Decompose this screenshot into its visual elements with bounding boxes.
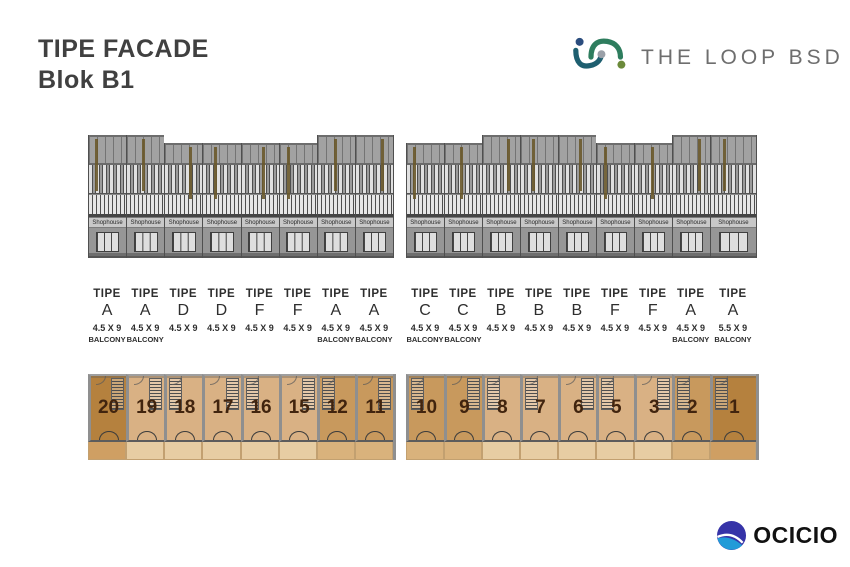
plan-room: 12 [317,374,355,442]
unit-size: 4.5 X 9 [279,323,317,333]
type-labels-left: TIPEA4.5 X 9BALCONYTIPEA4.5 X 9BALCONYTI… [88,288,393,344]
entry-door-arcs-icon [454,431,474,440]
plan-room: 17 [202,374,240,442]
facade-upper-panel [127,135,164,165]
tipe-word: TIPE [355,288,393,300]
facade-second-floor-windows [280,194,317,217]
tipe-word: TIPE [710,288,756,300]
unit-number: 8 [497,397,508,419]
plan-room: 15 [279,374,317,442]
ocicio-logo-text: OCICIO [753,522,838,549]
unit-size: 4.5 X 9 [126,323,164,333]
facade-upper-panel [242,143,279,165]
shopfront-door [414,232,438,252]
facade-left-building: ShophouseShophouseShophouseShophouseShop… [88,135,394,258]
type-label-3: TIPEF4.5 X 9 [634,288,672,344]
back-door-arc-icon [96,376,106,385]
unit-number: 20 [98,397,119,419]
facade-ground-floor [242,228,279,258]
balcony-word [558,335,596,344]
facade-ground-floor [597,228,634,258]
shopfront-door [363,232,387,252]
front-terrace [482,442,520,460]
unit-size: 4.5 X 9 [444,323,482,333]
tipe-letter: A [710,302,756,320]
back-door-arc-icon [566,376,576,385]
facade-second-floor-windows [559,194,596,217]
facade-upper-panel [711,135,756,165]
tipe-letter: A [88,302,126,320]
tipe-word: TIPE [482,288,520,300]
plan-room: 18 [164,374,202,442]
shophouse-sign: Shophouse [445,217,482,228]
shophouse-sign-text: Shophouse [600,220,630,226]
facade-second-floor-windows [242,194,279,217]
tipe-letter: B [482,302,520,320]
back-door-arc-icon [642,376,652,385]
facade-third-floor-windows [165,165,202,194]
floor-plans-left: 2019181716151211 [88,374,396,460]
facade-upper-panel [280,143,317,165]
tipe-letter: F [596,302,634,320]
type-label-19: TIPEA4.5 X 9BALCONY [126,288,164,344]
brochure-page: TIPE FACADE Blok B1 THE LOOP BSD Shophou… [0,0,850,567]
plan-room: 5 [596,374,634,442]
facade-second-floor-windows [203,194,240,217]
plan-unit-16: 16 [241,374,279,460]
unit-number: 10 [416,397,437,419]
theloop-bsd-logo: THE LOOP BSD [572,34,844,82]
shophouse-sign: Shophouse [165,217,202,228]
entry-door-arcs-icon [213,431,233,440]
front-terrace [164,442,202,460]
facade-upper-panel [635,143,672,165]
unit-number: 5 [611,397,622,419]
tipe-word: TIPE [558,288,596,300]
shophouse-sign-text: Shophouse [245,220,275,226]
plan-room: 7 [520,374,558,442]
plan-unit-12: 12 [317,374,355,460]
facade-unit-11: Shophouse [355,135,393,258]
balcony-word: BALCONY [672,335,710,344]
plan-unit-1: 1 [710,374,756,460]
facade-third-floor-windows [242,165,279,194]
facade-third-floor-windows [559,165,596,194]
ocicio-logo: OCICIO [716,520,838,551]
balcony-word [596,335,634,344]
balcony-word: BALCONY [88,335,126,344]
facade-unit-20: Shophouse [88,135,126,258]
facade-upper-panel [445,143,482,165]
front-terrace [520,442,558,460]
plan-unit-8: 8 [482,374,520,460]
shophouse-sign-text: Shophouse [283,220,313,226]
tipe-letter: A [355,302,393,320]
unit-size: 4.5 X 9 [317,323,355,333]
plan-room: 19 [126,374,164,442]
plan-unit-10: 10 [406,374,444,460]
shophouse-sign: Shophouse [203,217,240,228]
front-terrace [558,442,596,460]
facade-unit-12: Shophouse [317,135,355,258]
shophouse-sign-text: Shophouse [676,220,706,226]
facade-ground-floor [203,228,240,258]
plan-unit-7: 7 [520,374,558,460]
facade-second-floor-windows [127,194,164,217]
facade-ground-floor [407,228,444,258]
unit-number: 17 [212,397,233,419]
unit-size: 4.5 X 9 [241,323,279,333]
facade-unit-6: Shophouse [558,135,596,258]
unit-size: 4.5 X 9 [634,323,672,333]
tipe-letter: B [520,302,558,320]
tipe-word: TIPE [596,288,634,300]
plan-unit-20: 20 [88,374,126,460]
plan-unit-15: 15 [279,374,317,460]
facade-upper-panel [318,135,355,165]
facade-unit-7: Shophouse [520,135,558,258]
tipe-word: TIPE [164,288,202,300]
facade-unit-3: Shophouse [634,143,672,258]
facade-ground-floor [673,228,710,258]
shophouse-sign-text: Shophouse [562,220,592,226]
front-terrace [634,442,672,460]
shopfront-door [452,232,476,252]
unit-size: 4.5 X 9 [672,323,710,333]
facade-second-floor-windows [597,194,634,217]
unit-size: 4.5 X 9 [202,323,240,333]
balcony-word: BALCONY [710,335,756,344]
facade-second-floor-windows [356,194,393,217]
unit-number: 16 [250,397,271,419]
title-line-1: TIPE FACADE [38,34,209,65]
unit-size: 4.5 X 9 [406,323,444,333]
tipe-letter: C [444,302,482,320]
shopfront-door [719,232,748,252]
tipe-word: TIPE [406,288,444,300]
shophouse-sign: Shophouse [280,217,317,228]
entry-door-arcs-icon [530,431,550,440]
type-label-9: TIPEC4.5 X 9BALCONY [444,288,482,344]
facade-third-floor-windows [127,165,164,194]
plan-room: 10 [406,374,444,442]
facade-second-floor-windows [407,194,444,217]
facade-third-floor-windows [407,165,444,194]
facade-upper-panel [559,135,596,165]
theloop-logo-text: THE LOOP BSD [641,46,844,70]
type-label-16: TIPEF4.5 X 9 [241,288,279,344]
facade-unit-5: Shophouse [596,143,634,258]
shopfront-door [210,232,234,252]
facade-second-floor-windows [673,194,710,217]
front-terrace [88,442,126,460]
shophouse-sign-text: Shophouse [169,220,199,226]
facade-second-floor-windows [165,194,202,217]
unit-size: 4.5 X 9 [596,323,634,333]
tipe-word: TIPE [279,288,317,300]
front-terrace [279,442,317,460]
entry-door-arcs-icon [492,431,512,440]
facade-upper-panel [597,143,634,165]
unit-number: 7 [535,397,546,419]
shophouse-sign-text: Shophouse [410,220,440,226]
facade-ground-floor [483,228,520,258]
facade-unit-10: Shophouse [406,143,444,258]
plan-unit-2: 2 [672,374,710,460]
facade-third-floor-windows [445,165,482,194]
facade-third-floor-windows [673,165,710,194]
plan-room: 11 [355,374,393,442]
facade-third-floor-windows [597,165,634,194]
plan-unit-19: 19 [126,374,164,460]
tipe-word: TIPE [202,288,240,300]
shophouse-sign: Shophouse [483,217,520,228]
unit-size: 5.5 X 9 [710,323,756,333]
type-label-20: TIPEA4.5 X 9BALCONY [88,288,126,344]
facade-upper-panel [407,143,444,165]
floor-plans-right: 1098765321 [406,374,759,460]
facade-second-floor-windows [711,194,756,217]
shophouse-sign-text: Shophouse [321,220,351,226]
plan-unit-5: 5 [596,374,634,460]
plan-unit-3: 3 [634,374,672,460]
balcony-word [279,335,317,344]
facade-ground-floor [89,228,126,258]
unit-number: 12 [327,397,348,419]
ocicio-logo-icon [716,520,747,551]
tipe-letter: F [279,302,317,320]
type-label-7: TIPEB4.5 X 9 [520,288,558,344]
shophouse-sign-text: Shophouse [359,220,389,226]
facade-upper-panel [203,143,240,165]
front-terrace [126,442,164,460]
front-terrace [672,442,710,460]
facade-unit-18: Shophouse [164,143,202,258]
shophouse-sign: Shophouse [127,217,164,228]
shophouse-sign-text: Shophouse [486,220,516,226]
shophouse-sign-text: Shophouse [524,220,554,226]
entry-door-arcs-icon [682,431,702,440]
plan-room: 16 [241,374,279,442]
front-terrace [241,442,279,460]
entry-door-arcs-icon [724,431,744,440]
tipe-word: TIPE [520,288,558,300]
type-label-2: TIPEA4.5 X 9BALCONY [672,288,710,344]
shopfront-door [566,232,590,252]
facade-unit-8: Shophouse [482,135,520,258]
shophouse-sign-text: Shophouse [207,220,237,226]
tipe-letter: A [126,302,164,320]
balcony-word [634,335,672,344]
unit-number: 11 [365,397,385,419]
balcony-word [520,335,558,344]
facade-unit-2: Shophouse [672,135,710,258]
facade-ground-floor [711,228,756,258]
shopfront-door [604,232,628,252]
facade-third-floor-windows [483,165,520,194]
facade-ground-floor [445,228,482,258]
shophouse-sign: Shophouse [242,217,279,228]
tipe-word: TIPE [444,288,482,300]
unit-number: 6 [573,397,584,419]
tipe-word: TIPE [88,288,126,300]
facade-unit-15: Shophouse [279,143,317,258]
facade-ground-floor [280,228,317,258]
type-label-15: TIPEF4.5 X 9 [279,288,317,344]
tipe-letter: F [634,302,672,320]
facade-upper-panel [673,135,710,165]
facade-third-floor-windows [711,165,756,194]
shophouse-sign: Shophouse [635,217,672,228]
entry-door-arcs-icon [606,431,626,440]
shophouse-sign: Shophouse [407,217,444,228]
shopfront-door [324,232,348,252]
entry-door-arcs-icon [568,431,588,440]
entry-door-arcs-icon [416,431,436,440]
balcony-word [164,335,202,344]
facade-second-floor-windows [445,194,482,217]
facade-second-floor-windows [483,194,520,217]
tipe-letter: D [164,302,202,320]
tipe-word: TIPE [317,288,355,300]
tipe-word: TIPE [241,288,279,300]
unit-size: 4.5 X 9 [520,323,558,333]
plan-room: 9 [444,374,482,442]
theloop-logo-icon [572,34,629,82]
shophouse-sign: Shophouse [318,217,355,228]
balcony-word [241,335,279,344]
entry-door-arcs-icon [175,431,195,440]
balcony-word: BALCONY [317,335,355,344]
shophouse-sign-text: Shophouse [92,220,122,226]
shopfront-door [286,232,310,252]
balcony-word: BALCONY [406,335,444,344]
unit-number: 19 [136,397,157,419]
facade-third-floor-windows [635,165,672,194]
back-door-arc-icon [287,376,297,385]
plan-room: 3 [634,374,672,442]
entry-door-arcs-icon [137,431,157,440]
facade-unit-16: Shophouse [241,143,279,258]
facade-second-floor-windows [318,194,355,217]
facade-third-floor-windows [521,165,558,194]
balcony-word: BALCONY [444,335,482,344]
tipe-letter: B [558,302,596,320]
facade-ground-floor [635,228,672,258]
shophouse-sign: Shophouse [356,217,393,228]
balcony-word: BALCONY [126,335,164,344]
tipe-letter: A [672,302,710,320]
facade-third-floor-windows [203,165,240,194]
unit-number: 15 [289,397,310,419]
facade-unit-9: Shophouse [444,143,482,258]
shophouse-sign-text: Shophouse [448,220,478,226]
facade-upper-panel [165,143,202,165]
plan-room: 20 [88,374,126,442]
facade-third-floor-windows [356,165,393,194]
tipe-word: TIPE [126,288,164,300]
entry-door-arcs-icon [644,431,664,440]
shophouse-sign: Shophouse [559,217,596,228]
facade-ground-floor [356,228,393,258]
page-title: TIPE FACADE Blok B1 [38,34,209,96]
facade-unit-17: Shophouse [202,143,240,258]
shopfront-door [96,232,120,252]
plan-unit-9: 9 [444,374,482,460]
facade-ground-floor [521,228,558,258]
entry-door-arcs-icon [251,431,271,440]
entry-door-arcs-icon [99,431,119,440]
type-labels-right: TIPEC4.5 X 9BALCONYTIPEC4.5 X 9BALCONYTI… [406,288,756,344]
tipe-letter: A [317,302,355,320]
facade-ground-floor [127,228,164,258]
facade-upper-panel [521,135,558,165]
type-label-5: TIPEF4.5 X 9 [596,288,634,344]
facade-upper-panel [483,135,520,165]
shopfront-door [172,232,196,252]
facade-third-floor-windows [318,165,355,194]
type-label-10: TIPEC4.5 X 9BALCONY [406,288,444,344]
back-door-arc-icon [210,376,220,385]
shopfront-door [490,232,514,252]
plan-room: 8 [482,374,520,442]
shophouse-sign: Shophouse [597,217,634,228]
plan-room: 2 [672,374,710,442]
facade-third-floor-windows [280,165,317,194]
facade-second-floor-windows [635,194,672,217]
type-label-6: TIPEB4.5 X 9 [558,288,596,344]
shophouse-sign: Shophouse [711,217,756,228]
shopfront-door [642,232,666,252]
unit-number: 9 [459,397,470,419]
facade-unit-1: Shophouse [710,135,756,258]
shopfront-door [248,232,272,252]
unit-size: 4.5 X 9 [164,323,202,333]
tipe-word: TIPE [672,288,710,300]
type-label-18: TIPED4.5 X 9 [164,288,202,344]
title-line-2: Blok B1 [38,65,209,96]
entry-door-arcs-icon [289,431,309,440]
facade-ground-floor [559,228,596,258]
tipe-letter: C [406,302,444,320]
tipe-letter: F [241,302,279,320]
back-door-arc-icon [452,376,462,385]
facade-right-building: ShophouseShophouseShophouseShophouseShop… [406,135,757,258]
plan-unit-17: 17 [202,374,240,460]
plan-unit-6: 6 [558,374,596,460]
facade-upper-panel [89,135,126,165]
facade-second-floor-windows [521,194,558,217]
shophouse-sign-text: Shophouse [131,220,161,226]
unit-size: 4.5 X 9 [355,323,393,333]
shophouse-sign: Shophouse [521,217,558,228]
tipe-word: TIPE [634,288,672,300]
balcony-word: BALCONY [355,335,393,344]
unit-number: 2 [687,397,698,419]
plan-unit-11: 11 [355,374,393,460]
facade-unit-19: Shophouse [126,135,164,258]
type-label-8: TIPEB4.5 X 9 [482,288,520,344]
shophouse-sign-text: Shophouse [638,220,668,226]
front-terrace [596,442,634,460]
plan-room: 6 [558,374,596,442]
front-terrace [355,442,393,460]
plan-unit-18: 18 [164,374,202,460]
unit-number: 3 [649,397,660,419]
shophouse-sign-text: Shophouse [718,220,748,226]
entry-door-arcs-icon [327,431,347,440]
unit-number: 1 [729,397,740,419]
